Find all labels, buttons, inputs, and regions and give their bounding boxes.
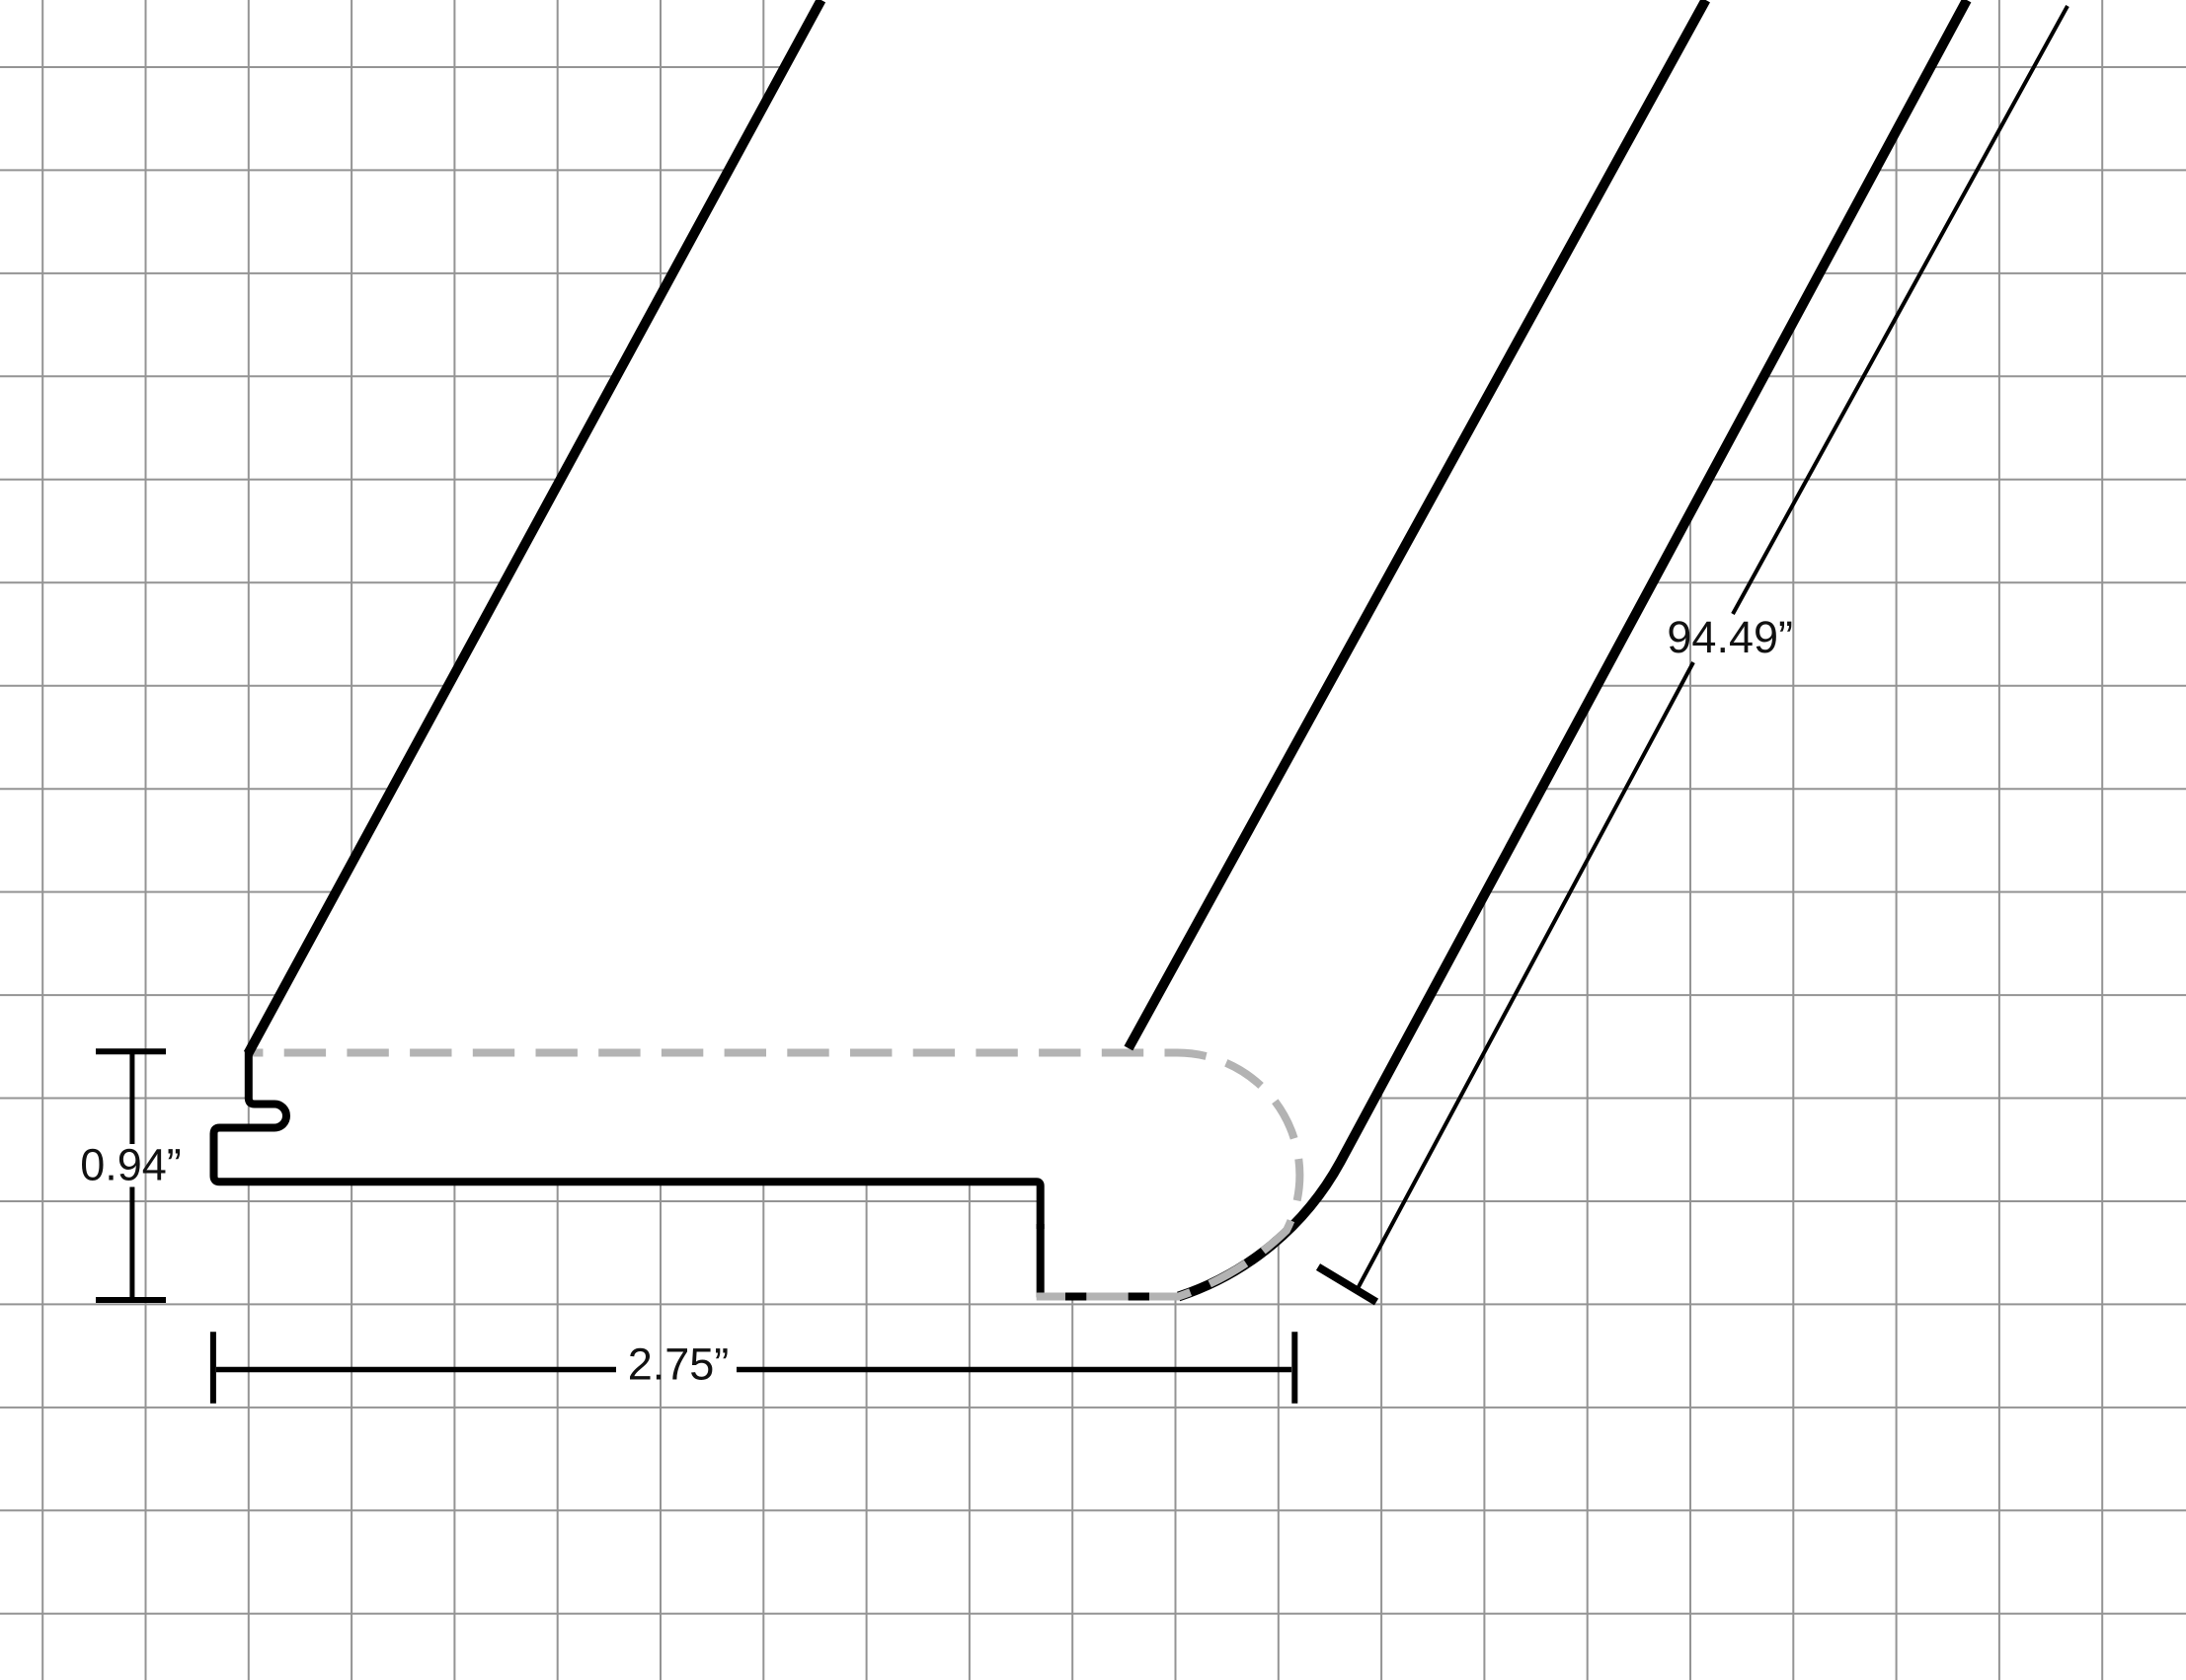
svg-text:94.49”: 94.49” bbox=[1667, 612, 1793, 662]
svg-text:0.94”: 0.94” bbox=[80, 1140, 182, 1190]
svg-text:2.75”: 2.75” bbox=[628, 1339, 730, 1390]
